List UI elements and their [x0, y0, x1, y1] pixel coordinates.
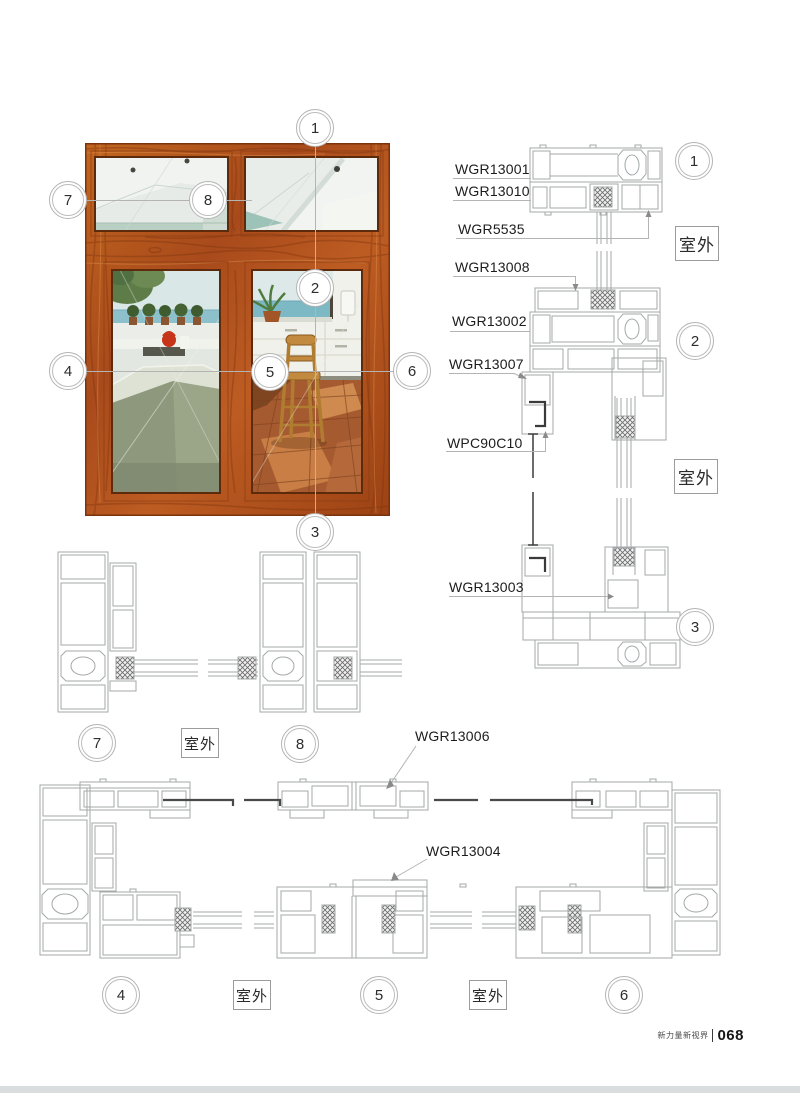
part-label-wgr13002: WGR13002	[452, 313, 527, 329]
outdoor-label-detail1: 室外	[675, 226, 719, 261]
head-section-row	[80, 779, 672, 818]
detail-circle-3: 3	[676, 608, 714, 646]
callout-number: 1	[690, 153, 698, 170]
detail-circle-7: 7	[78, 724, 116, 762]
window-photo	[85, 143, 390, 516]
callout-number: 2	[691, 333, 699, 350]
right-jamb-section	[644, 790, 720, 955]
part-label-wgr13004: WGR13004	[426, 843, 501, 859]
detail-1-section	[530, 145, 662, 215]
detail-circle-2: 2	[676, 322, 714, 360]
photo-callout-2: 2	[296, 269, 334, 307]
horizontal-section-drawings	[30, 775, 770, 965]
footer-divider	[712, 1029, 713, 1042]
seal-strips	[163, 800, 592, 806]
photo-callout-6: 6	[393, 352, 431, 390]
photo-callout-7: 7	[49, 181, 87, 219]
callout-number: 7	[64, 192, 72, 209]
callout-number: 7	[93, 735, 101, 752]
page-footer: 新力量新视界 068	[640, 1026, 744, 1044]
footer-brand: 新力量新视界	[657, 1030, 708, 1041]
insulated-glass-2	[617, 440, 631, 564]
outdoor-label-detail2: 室外	[674, 459, 718, 494]
photo-callout-5: 5	[251, 353, 289, 391]
callout-number: 4	[117, 987, 125, 1004]
photo-callout-3: 3	[296, 513, 334, 551]
callout-number: 6	[408, 363, 416, 380]
callout-number: 4	[64, 363, 72, 380]
transom-right-glass	[245, 157, 378, 231]
part-label-wgr13001: WGR13001	[455, 161, 530, 177]
detail-circle-4: 4	[102, 976, 140, 1014]
part-label-wgr13003: WGR13003	[449, 579, 524, 595]
detail-circle-5: 5	[360, 976, 398, 1014]
callout-number: 8	[296, 736, 304, 753]
catalog-page: WGR13001 WGR13010 WGR5535 WGR13008 WGR13…	[0, 0, 800, 1093]
part-label-wgr13007: WGR13007	[449, 356, 524, 372]
page-edge	[0, 1086, 800, 1093]
photo-callout-4: 4	[49, 352, 87, 390]
detail-7-8-drawings	[30, 545, 420, 720]
callout-number: 3	[691, 619, 699, 636]
callout-number: 2	[311, 280, 319, 297]
casement-left-glass	[101, 264, 220, 493]
callout-number: 5	[375, 987, 383, 1004]
window-photo-image	[85, 143, 390, 516]
outdoor-label-detail56: 室外	[469, 980, 507, 1010]
footer-page-number: 068	[717, 1027, 744, 1044]
detail-circle-6: 6	[605, 976, 643, 1014]
part-label-wgr5535: WGR5535	[458, 221, 525, 237]
part-label-wpc90c10: WPC90C10	[447, 435, 523, 451]
outdoor-label-detail45: 室外	[233, 980, 271, 1010]
corner-connector-parts	[528, 402, 545, 572]
sill-section-row	[100, 880, 672, 958]
photo-callout-1: 1	[296, 109, 334, 147]
detail-circle-1: 1	[675, 142, 713, 180]
photo-callout-8: 8	[189, 181, 227, 219]
detail-circle-8: 8	[281, 725, 319, 763]
callout-number: 1	[311, 120, 319, 137]
part-label-wgr13010: WGR13010	[455, 183, 530, 199]
callout-number: 6	[620, 987, 628, 1004]
insulated-glass-1	[597, 212, 611, 303]
detail-7-section	[58, 552, 198, 712]
callout-number: 5	[266, 364, 274, 381]
part-label-wgr13008: WGR13008	[455, 259, 530, 275]
detail-8-section	[208, 552, 402, 712]
detail-2-section	[522, 288, 666, 440]
part-label-wgr13006: WGR13006	[415, 728, 490, 744]
callout-number: 8	[204, 192, 212, 209]
outdoor-label-detail78: 室外	[181, 728, 219, 758]
callout-number: 3	[311, 524, 319, 541]
